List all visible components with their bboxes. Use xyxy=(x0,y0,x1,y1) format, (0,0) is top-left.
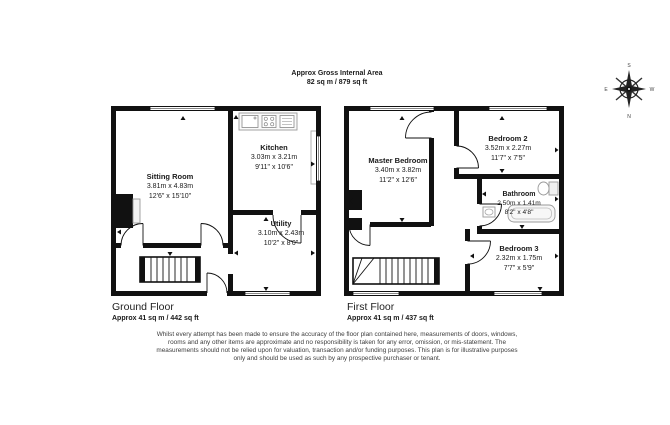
room-dim-imperial: 7'7" x 5'9" xyxy=(496,264,542,274)
compass-letter-right: W xyxy=(650,87,655,93)
room-dim-imperial: 12'6" x 15'10" xyxy=(147,192,194,202)
sitting-room-door-arc-right xyxy=(201,224,223,246)
compass-rose: S N E W xyxy=(601,58,657,120)
header-title: Approx Gross Internal Area xyxy=(291,69,382,78)
room-dim-imperial: 10'2" x 8'0" xyxy=(258,239,304,249)
bedroom3-door-arc xyxy=(468,241,491,264)
room-dim-metric: 3.81m x 4.83m xyxy=(147,182,194,192)
room-dim-metric: 3.03m x 3.21m xyxy=(251,153,297,163)
fireplace xyxy=(133,199,140,223)
room-dim-metric: 3.40m x 3.82m xyxy=(368,166,427,176)
gross-internal-area-header: Approx Gross Internal Area 82 sq m / 879… xyxy=(291,69,382,87)
floor-area: Approx 41 sq m / 442 sq ft xyxy=(112,315,199,322)
room-dim-metric: 3.52m x 2.27m xyxy=(485,144,531,154)
compass-letter-left: E xyxy=(604,87,608,93)
compass-star xyxy=(612,70,646,108)
room-label-kitchen: Kitchen 3.03m x 3.21m 9'11" x 10'6" xyxy=(251,143,297,173)
ground-floor-stairs xyxy=(140,257,200,282)
room-name: Sitting Room xyxy=(147,172,194,182)
disclaimer-text: Whilst every attempt has been made to en… xyxy=(150,331,524,363)
kitchen-worktop-edge xyxy=(311,131,316,184)
compass-letter-bottom: N xyxy=(627,114,631,120)
chimney-breast xyxy=(111,194,133,228)
room-dim-imperial: 8'2" x 4'8" xyxy=(497,208,541,217)
floor-name: First Floor xyxy=(347,301,434,313)
first-floor-caption: First Floor Approx 41 sq m / 437 sq ft xyxy=(347,301,434,322)
floorplan-page: Approx Gross Internal Area 82 sq m / 879… xyxy=(0,0,670,425)
kitchen-hob xyxy=(262,116,276,128)
room-dim-imperial: 11'2" x 12'6" xyxy=(368,176,427,186)
room-label-sitting-room: Sitting Room 3.81m x 4.83m 12'6" x 15'10… xyxy=(147,172,194,202)
toilet-cistern xyxy=(549,182,558,195)
room-name: Master Bedroom xyxy=(368,156,427,166)
room-name: Kitchen xyxy=(251,143,297,153)
bedroom2-door-arc xyxy=(457,146,479,168)
front-door-arc xyxy=(207,273,227,293)
room-dim-imperial: 11'7" x 7'5" xyxy=(485,154,531,164)
room-name: Bedroom 3 xyxy=(496,244,542,254)
header-area: 82 sq m / 879 sq ft xyxy=(291,78,382,87)
room-dim-metric: 3.10m x 2.43m xyxy=(258,229,304,239)
room-name: Bedroom 2 xyxy=(485,134,531,144)
room-label-master-bedroom: Master Bedroom 3.40m x 3.82m 11'2" x 12'… xyxy=(368,156,427,186)
floor-name: Ground Floor xyxy=(112,301,199,313)
first-floor-stairs xyxy=(353,258,439,284)
room-label-bedroom-2: Bedroom 2 3.52m x 2.27m 11'7" x 7'5" xyxy=(485,134,531,164)
ground-floor-plan xyxy=(111,106,321,296)
room-label-bathroom: Bathroom 2.50m x 1.41m 8'2" x 4'8" xyxy=(497,190,541,217)
ground-floor-caption: Ground Floor Approx 41 sq m / 442 sq ft xyxy=(112,301,199,322)
master-bedroom-door-arc xyxy=(406,112,432,138)
room-dim-imperial: 9'11" x 10'6" xyxy=(251,163,297,173)
floor-area: Approx 41 sq m / 437 sq ft xyxy=(347,315,434,322)
room-name: Utility xyxy=(258,219,304,229)
room-label-bedroom-3: Bedroom 3 2.32m x 1.75m 7'7" x 5'9" xyxy=(496,244,542,274)
room-label-utility: Utility 3.10m x 2.43m 10'2" x 8'0" xyxy=(258,219,304,249)
compass-letter-top: S xyxy=(627,63,631,69)
room-dim-metric: 2.32m x 1.75m xyxy=(496,254,542,264)
room-name: Bathroom xyxy=(497,190,541,199)
room-dim-metric: 2.50m x 1.41m xyxy=(497,199,541,208)
